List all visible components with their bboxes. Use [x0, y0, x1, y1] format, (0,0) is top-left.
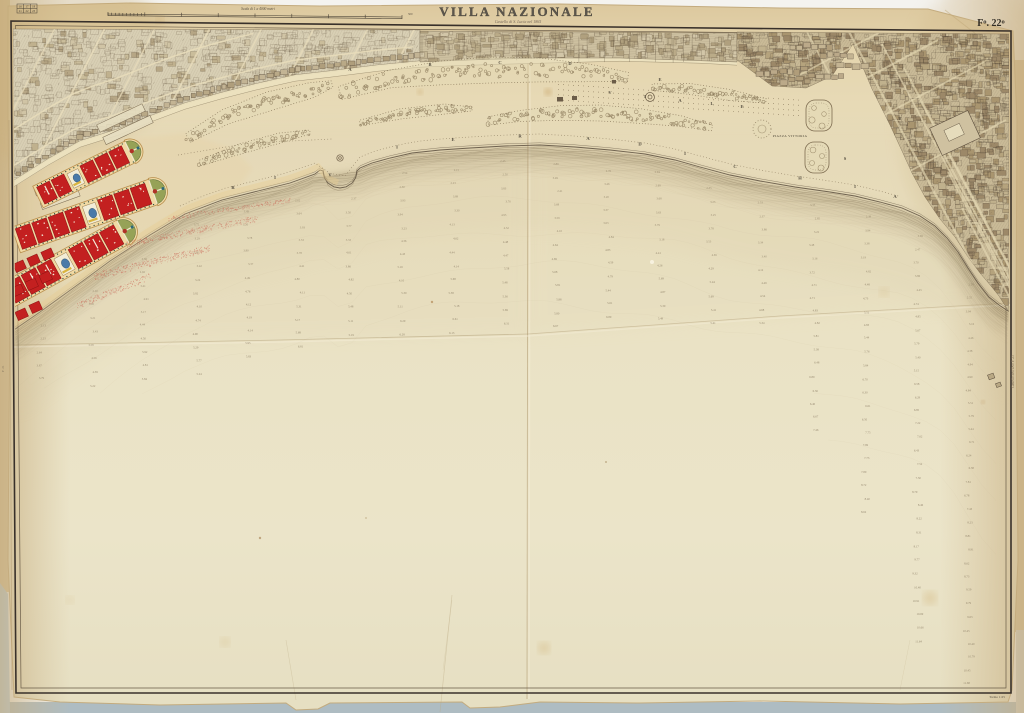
- svg-text:4.59: 4.59: [608, 260, 614, 264]
- svg-text:5.79: 5.79: [914, 341, 920, 345]
- svg-text:4.82: 4.82: [348, 277, 354, 281]
- svg-text:6.89: 6.89: [809, 375, 815, 379]
- svg-text:5.11: 5.11: [398, 305, 404, 309]
- svg-text:6.78: 6.78: [964, 494, 970, 498]
- svg-text:4.79: 4.79: [608, 275, 614, 279]
- svg-text:6.85: 6.85: [914, 408, 920, 412]
- svg-text:4.76: 4.76: [245, 290, 251, 294]
- svg-text:4.49: 4.49: [761, 281, 767, 285]
- svg-text:5.38: 5.38: [814, 348, 820, 352]
- svg-text:4.12: 4.12: [758, 268, 764, 272]
- svg-text:4.83: 4.83: [605, 248, 611, 252]
- svg-text:5.31: 5.31: [296, 305, 302, 309]
- svg-text:500: 500: [408, 12, 413, 16]
- svg-text:8.91: 8.91: [968, 548, 974, 552]
- svg-text:E: E: [740, 104, 743, 109]
- svg-text:5.69: 5.69: [659, 276, 665, 280]
- svg-text:10.91: 10.91: [913, 599, 920, 603]
- svg-text:4.41: 4.41: [656, 251, 662, 255]
- svg-text:5.44: 5.44: [710, 280, 716, 284]
- svg-text:5.36: 5.36: [502, 294, 508, 298]
- svg-text:5.18: 5.18: [454, 304, 460, 308]
- svg-text:7.75: 7.75: [865, 431, 871, 435]
- svg-text:4.41: 4.41: [299, 264, 305, 268]
- svg-text:7.62: 7.62: [917, 434, 923, 438]
- svg-text:4.19: 4.19: [247, 316, 253, 320]
- svg-text:9.63: 9.63: [967, 615, 973, 619]
- svg-text:5.48: 5.48: [502, 280, 508, 284]
- svg-text:23: 23: [32, 9, 36, 13]
- svg-text:6.29: 6.29: [915, 396, 921, 400]
- svg-text:8.17: 8.17: [914, 544, 920, 548]
- svg-text:4.90: 4.90: [193, 332, 199, 336]
- svg-text:4.12: 4.12: [246, 303, 252, 307]
- svg-text:5.48: 5.48: [348, 305, 354, 309]
- svg-text:6.89: 6.89: [606, 315, 612, 319]
- svg-text:Scala di 1 a 4000 metri: Scala di 1 a 4000 metri: [241, 7, 275, 11]
- svg-text:5.83: 5.83: [246, 354, 252, 358]
- svg-text:4.74: 4.74: [195, 318, 201, 322]
- svg-text:4.10: 4.10: [197, 304, 203, 308]
- svg-text:5.88: 5.88: [556, 297, 562, 301]
- svg-text:4.14: 4.14: [248, 328, 254, 332]
- svg-text:5.69: 5.69: [708, 294, 714, 298]
- svg-text:5.68: 5.68: [450, 277, 456, 281]
- svg-text:5.38: 5.38: [448, 291, 454, 295]
- svg-text:8.81: 8.81: [965, 534, 971, 538]
- svg-text:5.11: 5.11: [348, 319, 354, 323]
- svg-text:11.64: 11.64: [915, 640, 922, 644]
- svg-text:5.68: 5.68: [296, 331, 302, 335]
- svg-text:5.61: 5.61: [607, 301, 613, 305]
- svg-text:10.66: 10.66: [917, 626, 924, 630]
- svg-text:8.73: 8.73: [964, 574, 970, 578]
- svg-text:4.39: 4.39: [92, 370, 98, 374]
- svg-text:5.79: 5.79: [969, 414, 975, 418]
- svg-text:5.30: 5.30: [401, 291, 407, 295]
- svg-text:6.50: 6.50: [862, 418, 868, 422]
- svg-text:5.44: 5.44: [605, 289, 611, 293]
- svg-text:Castello di S. Lucia nel 1865: Castello di S. Lucia nel 1865: [495, 19, 541, 24]
- svg-text:6.71: 6.71: [969, 440, 975, 444]
- svg-text:9.77: 9.77: [914, 558, 920, 562]
- svg-text:5.44: 5.44: [864, 336, 870, 340]
- svg-text:6.67: 6.67: [813, 415, 819, 419]
- svg-text:5.95: 5.95: [245, 341, 251, 345]
- svg-text:4.14: 4.14: [454, 264, 460, 268]
- svg-text:6.40: 6.40: [810, 402, 816, 406]
- svg-text:8.62: 8.62: [861, 510, 867, 514]
- svg-text:4.11: 4.11: [300, 291, 306, 295]
- svg-text:8.22: 8.22: [916, 517, 922, 521]
- svg-text:5.68: 5.68: [552, 270, 558, 274]
- svg-text:10.45: 10.45: [964, 668, 971, 672]
- svg-text:22: 22: [26, 9, 30, 13]
- svg-text:4.69: 4.69: [552, 257, 558, 261]
- svg-text:6.31: 6.31: [504, 322, 510, 326]
- svg-text:4.90: 4.90: [967, 375, 973, 379]
- svg-text:7.80: 7.80: [861, 470, 867, 474]
- svg-text:9.79: 9.79: [966, 601, 972, 605]
- svg-text:7.73: 7.73: [864, 456, 870, 460]
- svg-text:10.79: 10.79: [968, 655, 975, 659]
- svg-text:5.76: 5.76: [864, 349, 870, 353]
- svg-text:6.29: 6.29: [400, 319, 406, 323]
- svg-text:17: 17: [26, 4, 30, 8]
- svg-text:B: B: [428, 62, 431, 67]
- svg-text:5.29: 5.29: [193, 345, 199, 349]
- svg-text:5.22: 5.22: [90, 384, 96, 388]
- svg-text:8.31: 8.31: [916, 530, 922, 534]
- svg-text:4.80: 4.80: [294, 277, 300, 281]
- svg-text:4.50: 4.50: [347, 292, 353, 296]
- svg-text:6.58: 6.58: [914, 382, 920, 386]
- svg-text:5.81: 5.81: [813, 334, 819, 338]
- svg-text:6.81: 6.81: [298, 344, 304, 348]
- svg-text:7.22: 7.22: [915, 421, 921, 425]
- svg-text:5.69: 5.69: [503, 308, 509, 312]
- svg-text:5.67: 5.67: [915, 328, 921, 332]
- svg-text:8.40: 8.40: [865, 497, 871, 501]
- svg-text:10.40: 10.40: [968, 642, 975, 646]
- svg-text:6.28: 6.28: [399, 333, 405, 337]
- svg-text:7.50: 7.50: [916, 476, 922, 480]
- svg-text:4.47: 4.47: [503, 254, 509, 258]
- svg-text:VILLA NAZIONALE: VILLA NAZIONALE: [439, 4, 594, 19]
- svg-text:5.24: 5.24: [196, 372, 202, 376]
- svg-text:5.30: 5.30: [660, 304, 666, 308]
- svg-text:Torino 1:25: Torino 1:25: [989, 695, 1005, 699]
- svg-text:5.44: 5.44: [968, 427, 974, 431]
- svg-text:5.51: 5.51: [864, 310, 870, 314]
- svg-text:PIAZZA VITTORIA: PIAZZA VITTORIA: [773, 134, 808, 138]
- svg-text:L: L: [710, 101, 713, 106]
- svg-text:I: I: [396, 144, 398, 149]
- svg-text:I: I: [274, 175, 276, 180]
- svg-text:9.59: 9.59: [966, 587, 972, 591]
- svg-text:H: H: [798, 176, 802, 181]
- svg-text:4.26: 4.26: [657, 264, 663, 268]
- svg-text:E: E: [658, 77, 661, 82]
- svg-text:F. 21: F. 21: [1, 365, 5, 372]
- svg-text:10.69: 10.69: [917, 612, 924, 616]
- svg-text:4.10: 4.10: [399, 278, 405, 282]
- svg-text:5.41: 5.41: [711, 308, 717, 312]
- svg-text:6.61: 6.61: [452, 317, 458, 321]
- svg-text:4.81: 4.81: [143, 363, 149, 367]
- svg-text:10.40: 10.40: [914, 585, 921, 589]
- svg-text:6.70: 6.70: [862, 377, 868, 381]
- svg-text:5.77: 5.77: [196, 358, 202, 362]
- svg-text:5.40: 5.40: [915, 356, 921, 360]
- svg-text:9.32: 9.32: [912, 571, 918, 575]
- svg-text:4.94: 4.94: [967, 362, 973, 366]
- svg-text:4.43: 4.43: [400, 252, 406, 256]
- svg-text:5.16: 5.16: [397, 265, 403, 269]
- svg-text:18: 18: [32, 4, 36, 8]
- svg-text:T: T: [898, 116, 901, 121]
- svg-text:5.19: 5.19: [349, 333, 355, 337]
- svg-text:4.87: 4.87: [660, 290, 666, 294]
- svg-text:4.50: 4.50: [141, 337, 147, 341]
- svg-text:4.29: 4.29: [708, 266, 714, 270]
- svg-text:16: 16: [19, 4, 23, 8]
- svg-text:5.17: 5.17: [295, 318, 301, 322]
- svg-text:4.74: 4.74: [913, 302, 919, 306]
- svg-text:Fo. 22o: Fo. 22o: [977, 18, 1005, 29]
- svg-text:6.61: 6.61: [865, 404, 871, 408]
- svg-text:4.71: 4.71: [810, 296, 816, 300]
- svg-text:6.43: 6.43: [914, 448, 920, 452]
- svg-text:5.41: 5.41: [710, 321, 716, 325]
- svg-text:4.62: 4.62: [453, 237, 459, 241]
- svg-text:I: I: [684, 151, 686, 156]
- svg-text:4.71: 4.71: [811, 283, 817, 287]
- svg-text:5.81: 5.81: [555, 283, 561, 287]
- svg-text:4.64: 4.64: [553, 243, 559, 247]
- svg-text:4.44: 4.44: [449, 251, 455, 255]
- svg-text:7.69: 7.69: [863, 443, 869, 447]
- svg-text:4.73: 4.73: [863, 297, 869, 301]
- svg-text:7.43: 7.43: [967, 507, 973, 511]
- svg-text:5.84: 5.84: [142, 377, 148, 381]
- svg-text:8.72: 8.72: [861, 483, 867, 487]
- svg-text:8.79: 8.79: [912, 490, 918, 494]
- svg-text:Castello dell'Ovo F. 23: Castello dell'Ovo F. 23: [1011, 355, 1015, 388]
- svg-text:I: I: [854, 184, 856, 189]
- svg-text:4.83: 4.83: [864, 323, 870, 327]
- svg-text:5.34: 5.34: [759, 321, 765, 325]
- svg-text:4.83: 4.83: [813, 309, 819, 313]
- svg-text:8.46: 8.46: [918, 503, 924, 507]
- svg-text:I: I: [644, 94, 646, 99]
- svg-text:21: 21: [19, 9, 23, 13]
- svg-text:6.67: 6.67: [553, 324, 559, 328]
- svg-text:5.84: 5.84: [863, 364, 869, 368]
- svg-text:4.68: 4.68: [759, 308, 765, 312]
- svg-text:5.80: 5.80: [554, 311, 560, 315]
- svg-text:7.81: 7.81: [966, 480, 972, 484]
- svg-text:11.68: 11.68: [963, 681, 970, 685]
- svg-text:4.85: 4.85: [915, 315, 921, 319]
- svg-text:4.82: 4.82: [815, 321, 821, 325]
- svg-text:8.62: 8.62: [964, 562, 970, 566]
- svg-text:10.45: 10.45: [963, 629, 970, 633]
- svg-text:4.48: 4.48: [503, 240, 509, 244]
- svg-text:5.51: 5.51: [968, 401, 974, 405]
- svg-text:C: C: [498, 60, 501, 65]
- svg-text:4.54: 4.54: [760, 294, 766, 298]
- svg-text:6.30: 6.30: [862, 391, 868, 395]
- svg-text:C: C: [733, 164, 736, 169]
- svg-text:5.15: 5.15: [914, 369, 920, 373]
- svg-text:6.48: 6.48: [814, 361, 820, 365]
- svg-text:E: E: [451, 137, 454, 142]
- svg-text:5.92: 5.92: [142, 350, 148, 354]
- svg-text:6.24: 6.24: [966, 453, 972, 457]
- svg-text:6.36: 6.36: [813, 389, 819, 393]
- svg-text:7.46: 7.46: [813, 428, 819, 432]
- svg-text:6.13: 6.13: [449, 331, 455, 335]
